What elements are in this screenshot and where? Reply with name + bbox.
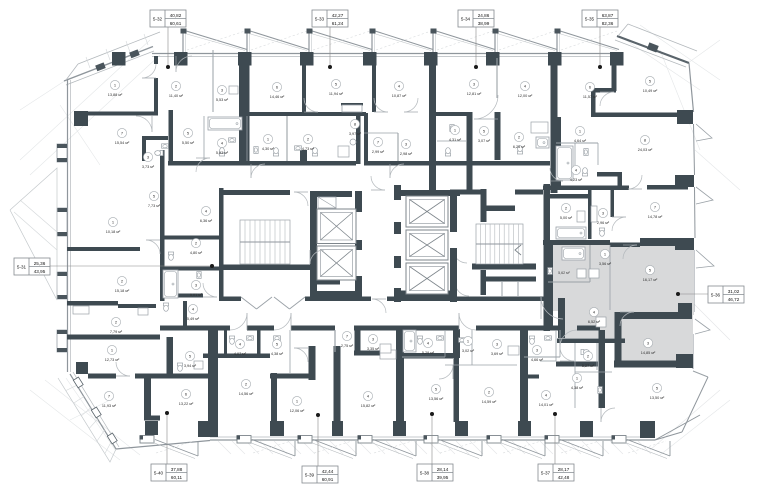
svg-text:24,86: 24,86 [478,13,490,18]
svg-text:4,07 м²: 4,07 м² [234,352,247,356]
svg-text:5-39: 5-39 [305,473,315,478]
svg-text:4,31 м²: 4,31 м² [449,138,462,142]
svg-text:3,56 м²: 3,56 м² [599,262,612,266]
svg-text:5,03 м²: 5,03 м² [216,151,229,155]
svg-text:60,11: 60,11 [171,475,183,480]
svg-text:6,25 м²: 6,25 м² [513,145,526,149]
svg-text:15,82 м²: 15,82 м² [361,404,376,408]
svg-text:25,36: 25,36 [34,261,46,266]
svg-text:2,96 м²: 2,96 м² [597,221,610,225]
svg-text:4,64 м²: 4,64 м² [574,139,587,143]
svg-text:10,87 м²: 10,87 м² [392,94,407,98]
svg-text:3,97 м²: 3,97 м² [349,132,362,136]
svg-text:28,14: 28,14 [437,467,449,472]
svg-text:42,27: 42,27 [332,13,344,18]
svg-text:63,87: 63,87 [602,13,614,18]
svg-text:5-32: 5-32 [153,17,163,22]
svg-text:5-36: 5-36 [711,293,721,298]
svg-text:31,02: 31,02 [728,289,740,294]
svg-text:5-33: 5-33 [315,17,325,22]
svg-text:5-37: 5-37 [541,471,551,476]
svg-text:5,27 м²: 5,27 м² [582,364,595,368]
svg-text:3,73 м²: 3,73 м² [142,165,155,169]
svg-text:46,72: 46,72 [728,297,740,302]
svg-text:15,54 м²: 15,54 м² [115,141,130,145]
svg-text:4,23 м²: 4,23 м² [570,178,583,182]
svg-text:13,88 м²: 13,88 м² [108,93,123,97]
svg-text:12,06 м²: 12,06 м² [290,409,305,413]
svg-text:5,00 м²: 5,00 м² [560,216,573,220]
svg-text:14,46 м²: 14,46 м² [270,95,285,99]
svg-text:3,69 м²: 3,69 м² [491,352,504,356]
svg-text:5-35: 5-35 [585,17,595,22]
svg-text:12,00 м²: 12,00 м² [518,94,533,98]
svg-text:4,30 м²: 4,30 м² [262,147,275,151]
svg-text:42,44: 42,44 [322,469,334,474]
svg-text:2,98 м²: 2,98 м² [400,152,413,156]
svg-text:15,18 м²: 15,18 м² [115,289,130,293]
svg-text:4,66 м²: 4,66 м² [531,358,544,362]
svg-text:6,52 м²: 6,52 м² [588,320,601,324]
svg-text:5,50 м²: 5,50 м² [182,141,195,145]
svg-text:5-38: 5-38 [420,471,430,476]
svg-text:2,99 м²: 2,99 м² [372,150,385,154]
svg-text:3,02 м²: 3,02 м² [462,349,475,353]
svg-text:10,49 м²: 10,49 м² [643,89,658,93]
svg-text:4,73 м²: 4,73 м² [302,147,315,151]
svg-text:13,56 м²: 13,56 м² [429,397,444,401]
svg-text:24,03 м²: 24,03 м² [638,148,653,152]
svg-text:5,53 м²: 5,53 м² [216,98,229,102]
svg-text:11,57 м²: 11,57 м² [583,95,598,99]
svg-text:60,91: 60,91 [322,477,334,482]
svg-text:3,94 м²: 3,94 м² [184,364,197,368]
svg-text:3,35 м²: 3,35 м² [367,347,380,351]
svg-text:5,62 м²: 5,62 м² [558,271,570,275]
svg-text:5-34: 5-34 [461,17,471,22]
svg-text:12,81 м²: 12,81 м² [467,92,482,96]
svg-text:13,22 м²: 13,22 м² [179,402,194,406]
svg-text:14,85 м²: 14,85 м² [641,351,656,355]
svg-text:11,40 м²: 11,40 м² [169,94,184,98]
svg-text:5,01 м²: 5,01 м² [190,293,203,297]
svg-text:13,50 м²: 13,50 м² [650,396,665,400]
svg-text:39,95: 39,95 [437,475,449,480]
svg-text:6,36 м²: 6,36 м² [200,219,213,223]
svg-text:28,17: 28,17 [558,467,570,472]
svg-text:4,80 м²: 4,80 м² [190,251,203,255]
svg-text:16,17 м²: 16,17 м² [643,278,658,282]
svg-text:7,73 м²: 7,73 м² [148,204,161,208]
svg-text:42,48: 42,48 [558,475,570,480]
svg-text:7,79 м²: 7,79 м² [110,330,123,334]
svg-text:10,18 м²: 10,18 м² [106,230,121,234]
svg-text:5-31: 5-31 [17,265,27,270]
svg-text:3,07 м²: 3,07 м² [478,139,491,143]
svg-text:12,73 м²: 12,73 м² [105,358,120,362]
svg-text:61,24: 61,24 [332,21,344,26]
svg-text:4,38 м²: 4,38 м² [271,352,284,356]
svg-text:4,38 м²: 4,38 м² [571,386,584,390]
svg-text:14,78 м²: 14,78 м² [648,215,663,219]
svg-text:40,82: 40,82 [170,13,182,18]
svg-text:14,56 м²: 14,56 м² [239,392,254,396]
svg-text:43,95: 43,95 [34,269,46,274]
svg-text:38,99: 38,99 [478,21,490,26]
svg-text:5-40: 5-40 [154,471,164,476]
svg-text:14,01 м²: 14,01 м² [539,403,554,407]
svg-text:11,93 м²: 11,93 м² [102,404,117,408]
svg-text:37,88: 37,88 [171,467,183,472]
svg-text:60,61: 60,61 [170,21,182,26]
svg-text:2,75 м²: 2,75 м² [341,344,354,348]
svg-text:5,49 м²: 5,49 м² [187,317,200,321]
svg-text:5,29 м²: 5,29 м² [422,351,435,355]
svg-text:14,59 м²: 14,59 м² [482,400,497,404]
svg-text:82,36: 82,36 [602,21,614,26]
svg-text:11,94 м²: 11,94 м² [329,92,344,96]
